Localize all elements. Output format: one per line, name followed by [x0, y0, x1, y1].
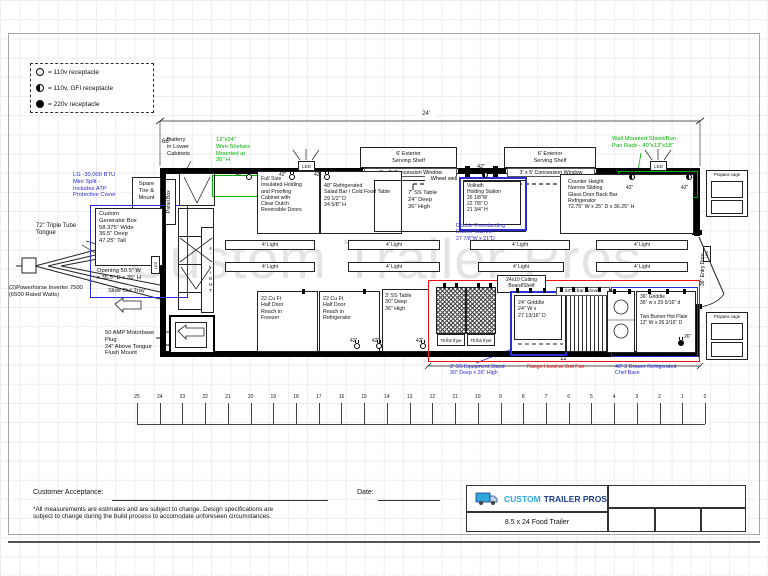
- ruler-number: 3: [631, 394, 643, 400]
- drawing-sheet: Custom Trailer Pros: [0, 0, 768, 576]
- ruler-tick: [364, 403, 365, 424]
- tongue-label: 72" Triple Tube Tongue: [36, 223, 94, 237]
- serving-shelf-label: 6' Exterior Serving Shelf: [392, 151, 425, 164]
- ruler-tick: [637, 403, 638, 424]
- sheet-frame-bottom-line: [8, 541, 760, 543]
- equipment-stand-note: 2' SS Equipment Stand 30" Deep x 26" Hig…: [450, 364, 528, 377]
- light-fixture: 4' Light: [348, 240, 440, 250]
- receptacle-110v: [324, 174, 330, 180]
- ruler-number: 1: [676, 394, 688, 400]
- connection-post: [613, 289, 616, 294]
- pan-rack-note: Wall Mounted Sheet/Bun Pan Rack - 40"x13…: [612, 136, 700, 150]
- serving-shelf-left: 6' Exterior Serving Shelf: [360, 147, 457, 168]
- ruler-tick: [682, 403, 683, 424]
- connection-post: [683, 289, 686, 294]
- propane-cage: Propane cage: [706, 312, 748, 360]
- mini-split-note: LG -30,000 BTU Mini Split - Includes ATP…: [73, 172, 137, 199]
- ruler-number: 13: [404, 394, 416, 400]
- ruler-tick: [182, 403, 183, 424]
- ruler-number: 22: [199, 394, 211, 400]
- ruler-tick: [160, 403, 161, 424]
- connection-post: [363, 289, 366, 294]
- receptacle-height-label: 42": [314, 172, 321, 178]
- light-fixture: 4' Light: [478, 262, 564, 272]
- light-fixture: 4' Light: [348, 262, 440, 272]
- wire-shelves-note: 12"x24" Wire Shelves Mounted at 36" H: [216, 137, 262, 164]
- light-fixture: 4' Light: [596, 262, 688, 272]
- panel-box-label: Panel Box: [165, 179, 176, 225]
- connection-post: [529, 288, 532, 293]
- ruler-number: 12: [426, 394, 438, 400]
- led-light-label: LED: [298, 161, 315, 171]
- range-burners: [607, 291, 635, 353]
- ruler-number: 4: [608, 394, 620, 400]
- slide-out-tray-label: Slide Out Tray: [108, 288, 164, 295]
- led-light-label: LED: [703, 246, 711, 262]
- ruler-tick: [546, 403, 547, 424]
- ruler-tick: [228, 403, 229, 424]
- ruler-tick: [387, 403, 388, 424]
- ruler-tick: [523, 403, 524, 424]
- ruler-tick: [205, 403, 206, 424]
- propane-cage-label: Propane cage: [707, 313, 747, 321]
- ruler-tick: [705, 403, 706, 424]
- ruler-tick: [251, 403, 252, 424]
- led-light-label: LED: [151, 256, 160, 274]
- light-fixture: 4' Light: [596, 240, 688, 250]
- ss-table-7ft-label: 7' SS Table 24" Deep 36" High: [408, 190, 456, 210]
- ruler-tick: [137, 403, 138, 424]
- ruler-number: 7: [540, 394, 552, 400]
- receptacle-110v: [246, 174, 252, 180]
- title-block-cell: [701, 508, 746, 532]
- charbroiler: [565, 289, 612, 352]
- ruler-tick: [410, 403, 411, 424]
- inverter-note: (2)Powerhorse Inverter 7500 (6500 Rated …: [9, 285, 105, 299]
- propane-tank: [711, 342, 743, 357]
- receptacle-height-label: 42": [279, 172, 286, 178]
- disclaimer: *All measurements are estimates and are …: [33, 506, 363, 521]
- legend: = 110v receptacle = 110v, GFI receptacle…: [30, 63, 154, 113]
- receptacle-110v: [629, 174, 635, 180]
- ruler-number: 18: [290, 394, 302, 400]
- ruler-tick: [273, 403, 274, 424]
- ruler-number: 21: [222, 394, 234, 400]
- connection-post: [477, 283, 480, 288]
- receptacle-110v: [686, 174, 692, 180]
- ruler-tick: [432, 403, 433, 424]
- customer-acceptance-line[interactable]: [112, 500, 328, 501]
- ruler-number: 25: [131, 394, 143, 400]
- ruler-tick: [319, 403, 320, 424]
- light-fixture-vertical: 4' LIGHT: [201, 227, 214, 313]
- motorbase-plug-note: 50 AMP Motorbase Plug 24" Above Tongue F…: [105, 330, 165, 357]
- ruler-tick: [569, 403, 570, 424]
- legend-label: = 110v, GFI receptacle: [48, 85, 113, 92]
- connection-post: [598, 287, 601, 292]
- receptacle-height-label: 42": [416, 338, 423, 344]
- brand-custom: CUSTOM: [504, 494, 541, 504]
- ruler-number: 6: [563, 394, 575, 400]
- ruler-number: 8: [517, 394, 529, 400]
- fryer: [466, 287, 496, 334]
- customer-acceptance-label: Customer Acceptance:: [33, 489, 103, 496]
- receptacle-height-label: 42": [372, 338, 379, 344]
- legend-row-220v: = 220v receptacle: [36, 100, 148, 108]
- ruler-tick: [296, 403, 297, 424]
- griddle-36-label: 36" Griddle 36" w x 29 5/16" d: [640, 295, 694, 307]
- receptacle-height-label: 42": [626, 185, 633, 191]
- led-light-label: LED: [650, 161, 667, 171]
- connection-post: [572, 287, 575, 292]
- holding-proofing-cabinet: Full Size Insulated Holding and Proofing…: [257, 171, 320, 234]
- receptacle-110v: [289, 174, 295, 180]
- ruler-number: 10: [472, 394, 484, 400]
- griddle-24: 24" Griddle 24" W x 27 13/16" D: [514, 295, 562, 340]
- receptacle-height-label: 26": [684, 334, 691, 340]
- hot-plate-label: Two Burner Hot Plate 12" W x 26 3/16" D: [640, 315, 694, 327]
- fryer: [436, 287, 466, 334]
- truck-icon: [475, 490, 499, 507]
- ruler-tick: [478, 403, 479, 424]
- battery-note: Battery in Lower Cabinets: [167, 137, 209, 157]
- ruler-number: 9: [495, 394, 507, 400]
- brand-trailer-pros: TRAILER PROS: [544, 494, 607, 504]
- light-fixture: 4' Light: [225, 262, 315, 272]
- ss-table-3ft-label: 3' SS Table 30" Deep 36" High: [385, 293, 429, 312]
- receptacle-220v-icon: [36, 100, 44, 108]
- ruler-number: 19: [267, 394, 279, 400]
- date-line[interactable]: [378, 500, 440, 501]
- charbroiler-label: 24" Char. w/oven: [556, 287, 610, 296]
- date-label: Date:: [357, 489, 374, 496]
- legend-row-110v: = 110v receptacle: [36, 68, 148, 76]
- title-block-product-cell: 8.5 x 24 Food Trailer: [466, 512, 608, 532]
- propane-tank: [711, 323, 743, 340]
- receptacle-height-label: 42": [681, 185, 688, 191]
- ruler-tick: [501, 403, 502, 424]
- fryer-label: 70 lbs fryer: [437, 334, 465, 346]
- connection-post: [516, 288, 519, 293]
- receptacle-height-label: 42": [350, 338, 357, 344]
- range-hood-note: Range Hood w/ 2nd Fan: [527, 364, 603, 370]
- ruler-number: 2: [654, 394, 666, 400]
- receptacle-110v: [482, 172, 488, 178]
- ruler-tick: [591, 403, 592, 424]
- ruler-number: 5: [585, 394, 597, 400]
- receptacle-110v-icon: [36, 68, 44, 76]
- title-block-logo-cell: CUSTOM TRAILER PROS: [466, 485, 608, 512]
- dim-overall-length: 24': [417, 111, 435, 118]
- ruler-tick: [455, 403, 456, 424]
- wheel-well-label: Wheel well: [425, 176, 463, 185]
- legend-label: = 220v receptacle: [48, 101, 100, 108]
- title-block-cell: [608, 508, 655, 532]
- ruler-number: 15: [358, 394, 370, 400]
- ruler-number: 24: [154, 394, 166, 400]
- serving-shelf-right: 6' Exterior Serving Shelf: [504, 147, 596, 168]
- ruler-baseline: [137, 424, 705, 425]
- connection-post: [455, 283, 458, 288]
- ruler: 2524232221201918171615141312111098765432…: [137, 394, 709, 426]
- ruler-tick: [614, 403, 615, 424]
- propane-tank: [711, 200, 743, 214]
- ruler-number: 16: [335, 394, 347, 400]
- serving-shelf-label: 6' Exterior Serving Shelf: [534, 151, 567, 164]
- ruler-number: 0: [699, 394, 711, 400]
- receptacle-110v-220v: [678, 340, 684, 346]
- ruler-tick: [660, 403, 661, 424]
- propane-tank: [711, 181, 743, 198]
- drawer-warmer-note: Double Freestanding Drawer Warmer 27 7/8…: [456, 223, 520, 242]
- light-fixture: 4' Light: [470, 240, 570, 250]
- connection-post: [543, 288, 546, 293]
- connection-post: [443, 283, 446, 288]
- ruler-tick: [341, 403, 342, 424]
- legend-row-gfi: = 110v, GFI receptacle: [36, 84, 148, 92]
- connection-post: [560, 287, 563, 292]
- connection-post: [489, 283, 492, 288]
- propane-cage: Propane cage: [706, 170, 748, 217]
- propane-cage-label: Propane cage: [707, 171, 747, 179]
- receptacle-height-label: 42": [236, 172, 243, 178]
- ruler-number: 23: [176, 394, 188, 400]
- ruler-number: 14: [381, 394, 393, 400]
- fryer-label: 70 lbs fryer: [467, 334, 495, 346]
- connection-post: [666, 289, 669, 294]
- ruler-number: 20: [245, 394, 257, 400]
- holding-station: Vollrath Holding Station 26 1/8"W 22 7/8…: [463, 181, 521, 225]
- receptacle-gfi-icon: [36, 84, 44, 92]
- spare-tire-bay: [179, 173, 215, 206]
- connection-post: [628, 289, 631, 294]
- title-block-cell: [608, 485, 746, 508]
- generator-tray: [175, 322, 207, 348]
- ruler-number: 11: [449, 394, 461, 400]
- connection-post: [648, 289, 651, 294]
- chef-base-note: 48" 2 Drawer Refrigerated Chef Base: [615, 364, 701, 377]
- title-block-cell: [655, 508, 701, 532]
- ruler-number: 17: [313, 394, 325, 400]
- connection-post: [585, 287, 588, 292]
- light-fixture: 4' Light: [225, 240, 315, 250]
- back-bar-refrigerator-label: Counter Height Narrow Sliding Glass Door…: [568, 179, 662, 210]
- reach-in-freezer: 22 Cu Ft Half Door Reach in Freezer: [257, 291, 318, 352]
- legend-label: = 110v receptacle: [48, 69, 99, 76]
- connection-post: [302, 289, 305, 294]
